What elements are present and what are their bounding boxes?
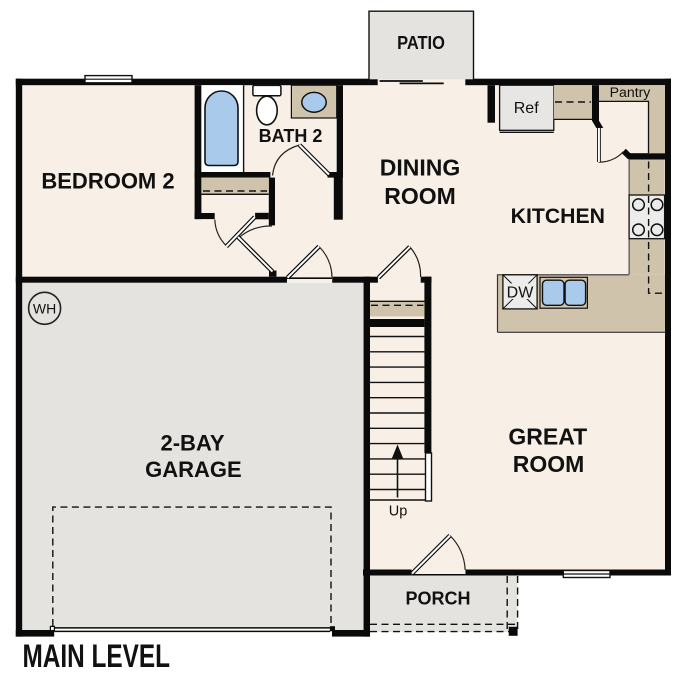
svg-text:PORCH: PORCH bbox=[405, 589, 470, 609]
svg-text:DINING: DINING bbox=[380, 154, 461, 180]
svg-text:WH: WH bbox=[33, 300, 56, 316]
svg-text:DW: DW bbox=[507, 284, 535, 301]
svg-text:Pantry: Pantry bbox=[610, 85, 651, 100]
svg-text:GARAGE: GARAGE bbox=[145, 457, 242, 482]
svg-text:MAIN LEVEL: MAIN LEVEL bbox=[23, 638, 171, 674]
svg-text:BEDROOM 2: BEDROOM 2 bbox=[41, 168, 174, 193]
svg-text:Up: Up bbox=[389, 503, 408, 519]
svg-text:KITCHEN: KITCHEN bbox=[511, 205, 605, 228]
svg-text:ROOM: ROOM bbox=[513, 451, 585, 477]
svg-text:2-BAY: 2-BAY bbox=[161, 431, 225, 456]
svg-text:BATH 2: BATH 2 bbox=[259, 126, 323, 146]
svg-text:PATIO: PATIO bbox=[397, 32, 445, 53]
svg-text:ROOM: ROOM bbox=[384, 183, 456, 209]
svg-text:Ref: Ref bbox=[514, 100, 539, 117]
svg-text:GREAT: GREAT bbox=[508, 423, 587, 449]
